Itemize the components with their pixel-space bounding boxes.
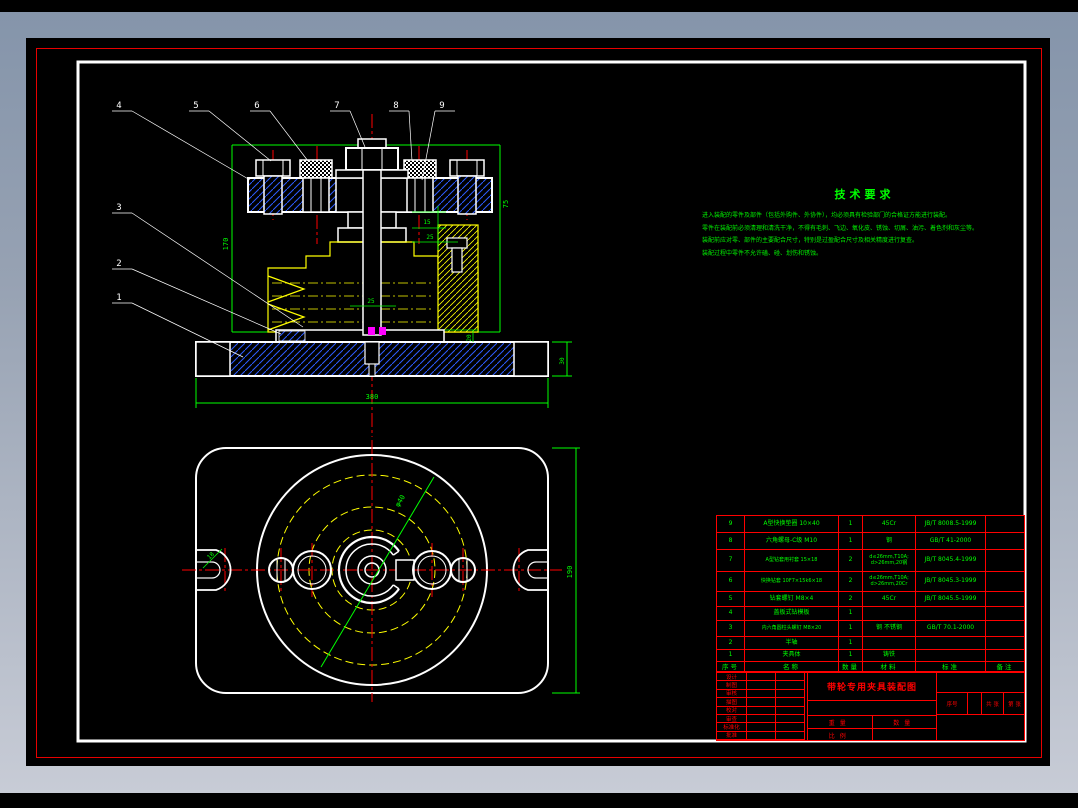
bom-cell [986,550,1024,572]
dim-base-width: 380 [366,393,379,401]
sig-label: 校对 [717,707,747,715]
dim-bush-step: 25 [426,234,434,241]
callout-7: 7 [334,101,339,111]
bom-cell: 内六角圆柱头螺钉 M8×20 [745,621,839,637]
title-block-spacer [808,701,936,716]
callout-2: 2 [116,259,121,269]
section-view: 170 75 [196,114,572,437]
tech-req-line: 零件在装配前必须清理和清洗干净，不得有毛刺、飞边、氧化皮、锈蚀、切屑、油污、着色… [702,223,1027,236]
bom-cell: 铸铁 [863,650,916,662]
dim-plan-height: 190 [566,566,574,579]
qty-label: 数量 [873,716,937,728]
sig-cell [747,707,776,715]
bom-cell: 45Cr [863,516,916,533]
bom-cell: JB/T 8045.4-1999 [916,550,986,572]
bom-cell: 1 [839,533,863,550]
title-block-spacer [937,673,1025,693]
sig-cell [776,681,805,689]
bom-cell [916,637,986,650]
sig-cell [776,698,805,706]
sig-cell [747,732,776,740]
bom-cell [986,621,1024,637]
bom-cell: 1 [839,637,863,650]
bom-cell: 1 [839,607,863,621]
callout-3: 3 [116,203,121,213]
bom-cell: A型快换垫圈 10×40 [745,516,839,533]
bom-cell: 45Cr [863,592,916,607]
bom-cell: JB/T 8045.5-1999 [916,592,986,607]
tech-req-line: 装配前应对零、部件的主要配合尺寸，特别是过盈配合尺寸及相关精度进行复查。 [702,235,1027,248]
bom-cell [986,637,1024,650]
bom-cell [986,592,1024,607]
bom-cell: 钢 [863,533,916,550]
callout-9: 9 [439,101,444,111]
drill-bushing-right [404,160,436,212]
bom-cell: 6 [717,572,745,592]
bom-cell: 5 [717,592,745,607]
bom-cell: 1 [717,650,745,662]
tech-req-line: 装配过程中零件不允许磕、碰、划伤和锈蚀。 [702,248,1027,261]
bom-cell: 六角螺母-C级 M10 [745,533,839,550]
bom-cell [986,607,1024,621]
sig-cell [776,715,805,723]
sig-cell [776,707,805,715]
dim-boss-dia: 25 [367,298,375,305]
callout-1: 1 [116,293,121,303]
title-block-center: 带轮专用夹具装配图 重量 数量 比例 [807,673,936,740]
sig-cell [747,723,776,731]
bom-cell [986,516,1024,533]
bom-cell [916,607,986,621]
sig-cell [747,698,776,706]
dim-base-height: 30 [559,357,566,365]
bom-cell [986,572,1024,592]
bom-cell: A型钻套用衬套 15×18 [745,550,839,572]
scale-label: 比例 [808,729,873,741]
bom-cell [986,650,1024,662]
title-block-right: 序号 共 张 第 张 [936,673,1025,740]
bom-cell: 4 [717,607,745,621]
sig-cell [747,681,776,689]
plan-view: φ40 18 190 [182,440,580,702]
dim-bolt-circle: φ40 [394,493,407,508]
plan-centerlines [182,440,562,702]
bom-cell: 1 [839,621,863,637]
sheet-no-label: 第 张 [1004,693,1025,714]
sig-cell [776,732,805,740]
parts-table: 9 A型快换垫圈 10×40 1 45Cr JB/T 8008.5-1999 8… [716,515,1025,672]
title-block: 设计 制图 审核 描图 校对 审查 标准化 批准 带轮专用夹具装配图 重量 数量… [716,672,1025,741]
technical-requirements: 技术要求 进入装配的零件及部件（包括外购件、外协件），均必须具有检验部门的合格证… [702,186,1027,260]
sig-cell [776,723,805,731]
bom-cell: JB/T 8045.3-1999 [916,572,986,592]
locating-plate [276,330,444,342]
bom-cell: 钻套螺钉 M8×4 [745,592,839,607]
scale-value-cell [873,729,937,741]
callout-5: 5 [193,101,198,111]
callout-8: 8 [393,101,398,111]
center-stud [363,170,381,335]
sig-label: 审核 [717,690,747,698]
bom-cell [986,533,1024,550]
drill-bushing-left [300,160,332,212]
sig-cell [776,673,805,681]
dim-overall-height: 170 [222,238,230,251]
bom-cell: 2 [717,637,745,650]
sig-label: 设计 [717,673,747,681]
sheets-label: 共 张 [982,693,1004,714]
dim-plate-step: 20 [466,334,473,342]
bom-cell: 半轴 [745,637,839,650]
serial-value-cell [968,693,982,714]
base-plate [196,342,548,376]
bom-cell: 快换钻套 10F7×15k6×18 [745,572,839,592]
sig-cell [776,690,805,698]
title-block-signatures: 设计 制图 审核 描图 校对 审查 标准化 批准 [717,673,807,740]
sig-label: 描图 [717,698,747,706]
bom-cell [863,637,916,650]
weight-label: 重量 [808,716,873,728]
tech-req-line: 进入装配的零件及部件（包括外购件、外协件），均必须具有检验部门的合格证方能进行装… [702,210,1027,223]
bom-cell: 2 [839,592,863,607]
sig-cell [747,715,776,723]
bom-cell: 夹具体 [745,650,839,662]
cad-viewer-window: 170 75 [0,0,1078,808]
bom-cell [916,650,986,662]
bom-cell: 1 [839,650,863,662]
tech-req-title: 技术要求 [702,186,1027,202]
bom-cell: GB/T 70.1-2000 [916,621,986,637]
sig-cell [747,690,776,698]
bom-cell: GB/T 41-2000 [916,533,986,550]
bom-cell: JB/T 8008.5-1999 [916,516,986,533]
bom-cell: 钢 不锈钢 [863,621,916,637]
bom-cell: d≤26mm,T10A; d>26mm,20钢 [863,550,916,572]
bom-cell: d≤26mm,T10A; d>26mm,20Cr [863,572,916,592]
bom-cell: 2 [839,550,863,572]
bom-cell: 3 [717,621,745,637]
bom-cell: 2 [839,572,863,592]
sig-cell [747,673,776,681]
bom-cell: 盖板式钻模板 [745,607,839,621]
sig-label: 审查 [717,715,747,723]
sig-label: 标准化 [717,723,747,731]
bom-cell: 9 [717,516,745,533]
bom-cell [863,607,916,621]
sig-label: 批准 [717,732,747,740]
serial-label: 序号 [937,693,968,714]
bom-cell: 7 [717,550,745,572]
callout-4: 4 [116,101,121,111]
drawing-title: 带轮专用夹具装配图 [808,673,936,701]
callout-6: 6 [254,101,259,111]
bom-cell: 8 [717,533,745,550]
bom-cell: 1 [839,516,863,533]
sig-label: 制图 [717,681,747,689]
dim-right-height: 75 [502,200,510,208]
dim-bush-depth: 15 [423,219,431,226]
dim-slot-width: 18 [206,551,216,561]
